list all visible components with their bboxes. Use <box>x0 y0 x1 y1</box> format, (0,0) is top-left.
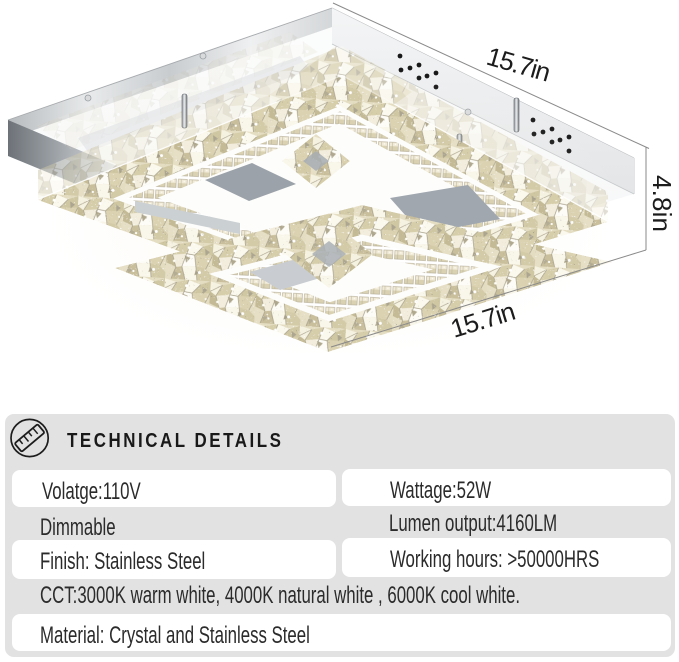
svg-text:15.7in: 15.7in <box>483 41 554 88</box>
svg-text:4.8in: 4.8in <box>647 175 677 232</box>
